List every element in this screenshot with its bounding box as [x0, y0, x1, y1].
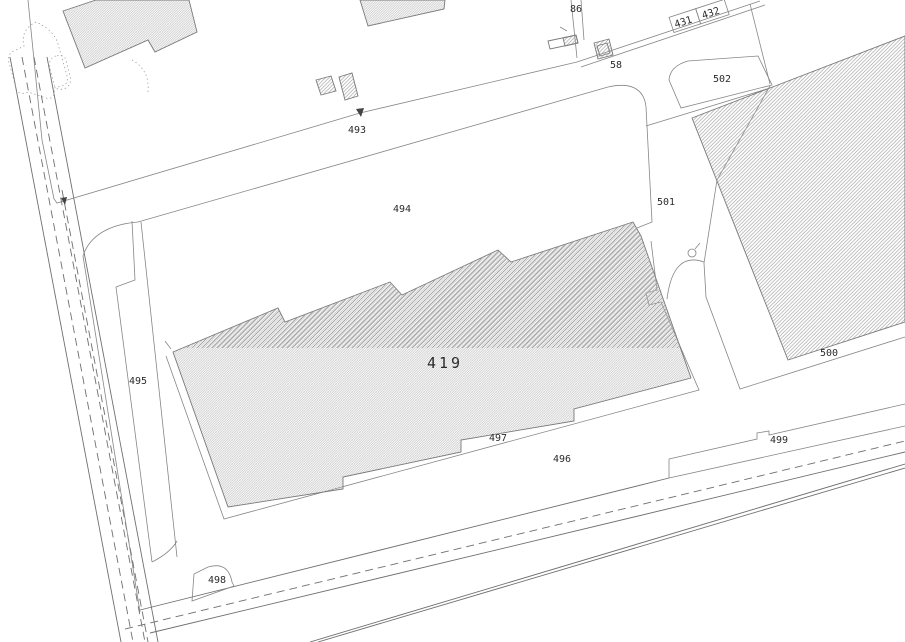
label-494: 494 [393, 204, 411, 215]
survey-point-tail [695, 243, 700, 249]
building-top-center [360, 0, 445, 26]
road-east-branch [750, 4, 770, 84]
label-432: 432 [701, 6, 722, 22]
parcel-495-strip [116, 221, 177, 562]
label-431: 431 [673, 15, 694, 31]
west-parcel-boundary [83, 256, 140, 612]
label-499: 499 [770, 435, 788, 446]
left-road-curb-east [47, 57, 158, 642]
label-86: 86 [570, 4, 582, 15]
label-501: 501 [657, 197, 675, 208]
label-419: 419 [427, 354, 463, 372]
label-495: 495 [129, 376, 147, 387]
survey-point-circle [688, 249, 696, 257]
small-structure-2 [339, 73, 358, 100]
left-road-lane-line-1 [22, 57, 133, 642]
driveway-arc [667, 260, 704, 299]
map-canvas[interactable]: 431 432 86 58 502 493 494 501 419 495 49… [0, 0, 905, 642]
left-road-lane-line-3 [62, 190, 148, 642]
dotted-outline-small [50, 56, 71, 90]
label-58: 58 [610, 60, 622, 71]
left-road-lane-line-2 [34, 57, 145, 642]
parcel-497-tick [165, 341, 171, 349]
label-497: 497 [489, 433, 507, 444]
small-tick [560, 27, 567, 31]
building-419-hatch-band [150, 200, 710, 348]
site-plan-svg: 431 432 86 58 502 493 494 501 419 495 49… [0, 0, 905, 642]
small-structure-1 [316, 76, 336, 95]
label-493: 493 [348, 125, 366, 136]
left-road [10, 57, 158, 642]
bottom-road-curb-north [140, 478, 669, 610]
left-road-curb-west [10, 57, 121, 642]
bottom-road-curb-south-1 [310, 464, 905, 642]
label-500: 500 [820, 348, 838, 359]
label-502: 502 [713, 74, 731, 85]
bottom-road-curb-south-2 [318, 468, 905, 642]
label-498: 498 [208, 575, 226, 586]
dotted-trace [132, 60, 148, 92]
label-496: 496 [553, 454, 571, 465]
buildings [63, 0, 905, 507]
building-top-left [63, 0, 197, 68]
dotted-outline-large [8, 22, 67, 98]
structure-58 [594, 39, 613, 59]
number-boxes: 431 432 [669, 0, 729, 33]
